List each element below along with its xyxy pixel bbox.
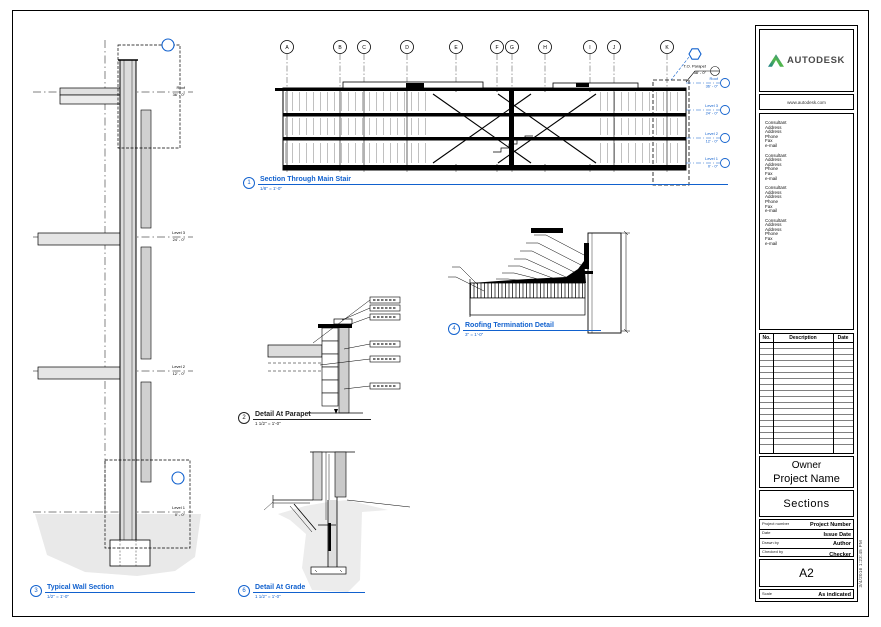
viewport-grade-detail[interactable] <box>250 440 440 598</box>
revision-table: No. Description Date <box>759 333 854 454</box>
project-name: Project Name <box>773 473 840 485</box>
sheet-title-box: Sections <box>759 490 854 517</box>
titleblock-consultants-box: Consultant Address Address Phone Fax e-m… <box>759 113 854 330</box>
svg-text:T.O. Parapet: T.O. Parapet <box>684 64 707 69</box>
view-title-line <box>45 592 195 593</box>
svg-text:B: B <box>338 45 342 51</box>
svg-text:Level 1: Level 1 <box>172 505 186 510</box>
view-number: 1 <box>243 177 255 189</box>
titleblock-logo-box: AUTODESK <box>759 29 854 92</box>
svg-text:H: H <box>543 45 547 51</box>
view-title-text: Section Through Main Stair <box>258 176 728 183</box>
view-title-text: Detail At Parapet <box>253 411 371 418</box>
field-checked-by: Checked by Checker <box>760 549 853 559</box>
viewport-roofing-detail[interactable] <box>438 205 653 335</box>
sheet-number: A2 <box>799 566 814 580</box>
field-value: Issue Date <box>823 532 851 538</box>
view-title-line <box>463 330 601 331</box>
view-title-roofing-detail[interactable]: 4 Roofing Termination Detail 3" = 1'-0" <box>448 322 601 337</box>
svg-text:24' - 0": 24' - 0" <box>706 111 719 116</box>
viewport-parapet-detail[interactable] <box>268 283 408 418</box>
sheet-title: Sections <box>783 498 829 510</box>
svg-text:K: K <box>665 45 669 51</box>
svg-text:36' - 0": 36' - 0" <box>173 92 186 97</box>
svg-text:Level 2: Level 2 <box>705 131 719 136</box>
callout-head-parapet[interactable] <box>162 39 174 51</box>
roofing-detail-drawing <box>448 228 630 333</box>
revision-col-date: Date <box>833 335 853 341</box>
owner-name: Owner <box>792 460 821 471</box>
revision-divider <box>773 334 774 453</box>
svg-text:38' - 0": 38' - 0" <box>694 70 707 75</box>
consultant-block: Consultant Address Address Phone Fax e-m… <box>765 219 853 247</box>
print-timestamp: 3/4/2016 1:23:45 PM <box>858 540 863 587</box>
svg-text:24' - 0": 24' - 0" <box>173 237 186 242</box>
view-title-parapet-detail[interactable]: 2 Detail At Parapet 1 1/2" = 1'-0" <box>238 411 371 426</box>
svg-text:Level 3: Level 3 <box>705 103 719 108</box>
revision-divider <box>833 334 834 453</box>
revision-col-description: Description <box>773 335 833 341</box>
sheet-number-box: A2 <box>759 559 854 587</box>
parapet-detail-drawing <box>268 297 400 414</box>
consultant-block: Consultant Address Address Phone Fax e-m… <box>765 154 853 182</box>
svg-text:Level 3: Level 3 <box>172 230 186 235</box>
consultant-block: Consultant Address Address Phone Fax e-m… <box>765 121 853 149</box>
building-section-drawing <box>275 82 686 170</box>
view-scale: 1/8" = 1'-0" <box>258 186 728 191</box>
svg-text:I: I <box>589 45 590 51</box>
field-label: Date <box>762 530 770 535</box>
field-label: Checked by <box>762 549 783 554</box>
svg-text:J: J <box>613 45 616 51</box>
drawing-sheet: AB CD EF GH IJ K <box>0 0 881 627</box>
view-scale: 1/2" = 1'-0" <box>45 594 195 599</box>
field-value: Project Number <box>810 522 851 528</box>
svg-text:Roof: Roof <box>710 76 719 81</box>
view-title-line <box>253 592 365 593</box>
svg-text:C: C <box>362 45 366 51</box>
svg-text:36' - 0": 36' - 0" <box>706 84 719 89</box>
svg-text:Level 1: Level 1 <box>705 156 719 161</box>
grade-detail-drawing <box>264 452 410 592</box>
titleblock-website-box: www.autodesk.com <box>759 94 854 110</box>
view-title-text: Typical Wall Section <box>45 584 195 591</box>
view-title-wall-section[interactable]: 3 Typical Wall Section 1/2" = 1'-0" <box>30 584 195 599</box>
callout-head-grade[interactable] <box>172 472 184 484</box>
svg-text:Level 2: Level 2 <box>172 364 186 369</box>
svg-text:F: F <box>495 45 498 51</box>
field-label: Drawn by <box>762 540 779 545</box>
view-title-line <box>258 184 728 185</box>
svg-text:12' - 0": 12' - 0" <box>706 139 719 144</box>
field-drawn-by: Drawn by Author <box>760 539 853 549</box>
titleblock-fields: Project number Project Number Date Issue… <box>759 519 854 557</box>
view-title-text: Roofing Termination Detail <box>463 322 601 329</box>
consultant-block: Consultant Address Address Phone Fax e-m… <box>765 186 853 214</box>
field-project-number: Project number Project Number <box>760 520 853 530</box>
viewport-main-section[interactable]: AB CD EF GH IJ K <box>243 30 753 190</box>
website-text: www.autodesk.com <box>787 100 826 105</box>
autodesk-logo-text: AUTODESK <box>787 55 845 66</box>
field-value: Author <box>833 541 851 547</box>
field-date: Date Issue Date <box>760 530 853 540</box>
revision-col-no: No. <box>760 335 773 341</box>
viewport-wall-section[interactable]: Roof36' - 0" Level 324' - 0" Level 212' … <box>25 35 225 590</box>
view-title-line <box>253 419 371 420</box>
view-number: 2 <box>238 412 250 424</box>
svg-text:0' - 0": 0' - 0" <box>175 512 186 517</box>
svg-text:0' - 0": 0' - 0" <box>708 164 719 169</box>
svg-text:G: G <box>510 45 514 51</box>
keynote-tags <box>370 297 400 389</box>
view-scale: 3" = 1'-0" <box>463 332 601 337</box>
scale-box: Scale As indicated <box>759 589 854 599</box>
view-number: 6 <box>238 585 250 597</box>
view-scale: 1 1/2" = 1'-0" <box>253 594 365 599</box>
owner-project-box: Owner Project Name <box>759 456 854 488</box>
view-number: 4 <box>448 323 460 335</box>
field-label: Project number <box>762 521 789 526</box>
section-level-markers: T.O. Parapet 38' - 0" Roof 36' - 0" Leve… <box>684 64 730 169</box>
view-scale: 1 1/2" = 1'-0" <box>253 421 371 426</box>
svg-text:D: D <box>405 45 409 51</box>
svg-text:Roof: Roof <box>177 85 186 90</box>
view-number: 3 <box>30 585 42 597</box>
view-title-main-section[interactable]: 1 Section Through Main Stair 1/8" = 1'-0… <box>243 176 728 191</box>
view-title-text: Detail At Grade <box>253 584 365 591</box>
field-value: Checker <box>829 552 851 558</box>
svg-text:12' - 0": 12' - 0" <box>173 371 186 376</box>
view-title-grade-detail[interactable]: 6 Detail At Grade 1 1/2" = 1'-0" <box>238 584 365 599</box>
svg-text:A: A <box>285 45 289 51</box>
scale-value: As indicated <box>818 592 851 598</box>
autodesk-logo-icon <box>768 54 784 67</box>
wall-section-drawing: Roof36' - 0" Level 324' - 0" Level 212' … <box>33 40 201 576</box>
scale-label: Scale <box>762 591 772 596</box>
svg-text:E: E <box>454 45 458 51</box>
